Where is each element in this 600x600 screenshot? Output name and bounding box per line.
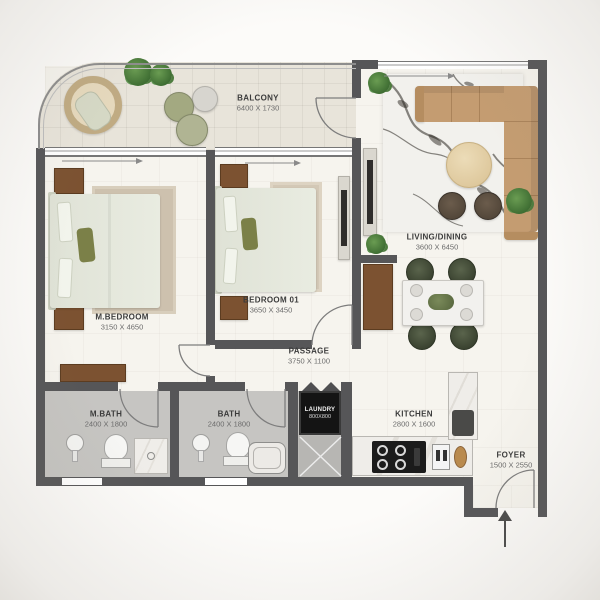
bed-pillow [57, 202, 74, 243]
room-label-mbedroom: M.BEDROOM 3150 X 4650 [95, 313, 148, 332]
bed-pillow [223, 248, 238, 285]
floor-plan: LAUNDRY 800X800 [0, 0, 600, 600]
bathtub-inner [253, 447, 281, 469]
room-dims: 3650 X 3450 [243, 306, 299, 315]
room-name: BALCONY [237, 94, 280, 103]
living-stool [474, 192, 502, 220]
wall-segment [341, 382, 352, 477]
sofa-top-section [424, 86, 508, 122]
dining-chair [450, 322, 478, 350]
dining-chair [408, 322, 436, 350]
room-label-bedroom01: BEDROOM 01 3650 X 3450 [243, 296, 299, 315]
room-name: M.BATH [85, 410, 128, 419]
room-label-foyer: FOYER 1500 X 2550 [490, 451, 533, 470]
room-name: M.BEDROOM [95, 313, 148, 322]
burner-icon [377, 445, 388, 456]
window-bath [205, 478, 247, 485]
room-name: BATH [208, 410, 251, 419]
sofa-armrest [504, 232, 538, 240]
bath-sink-pedestal [198, 450, 204, 462]
wall-segment [36, 148, 45, 486]
mbedroom-wardrobe [60, 364, 126, 382]
room-name: FOYER [490, 451, 533, 460]
place-setting [410, 284, 423, 297]
cooktop [372, 441, 426, 473]
entry-arrow-icon [496, 510, 516, 550]
wall-segment [170, 391, 179, 477]
wall-segment [158, 382, 245, 391]
room-dims: 3750 X 1100 [288, 357, 330, 366]
mbedroom-nightstand [54, 168, 84, 194]
sink-basin [436, 450, 440, 461]
room-name: BEDROOM 01 [243, 296, 299, 305]
accent-pillow [241, 217, 259, 250]
burner-icon [395, 459, 406, 470]
living-plant-icon [368, 72, 390, 94]
sofa-armrest [415, 86, 424, 122]
living-stool [438, 192, 466, 220]
tv-screen [367, 160, 373, 224]
accent-pillow [76, 227, 95, 262]
room-dims: 6400 X 1730 [237, 104, 280, 113]
entry-arrow-stem [504, 521, 506, 547]
washer-unit: LAUNDRY 800X800 [299, 391, 341, 435]
living-plant-icon [366, 234, 386, 254]
room-label-bath: BATH 2400 X 1800 [208, 410, 251, 429]
burner-icon [377, 459, 388, 470]
mbath-toilet-tank [101, 458, 131, 468]
place-setting [460, 308, 473, 321]
wall-segment [361, 255, 397, 263]
dining-console [363, 264, 393, 330]
coffee-table [446, 142, 492, 188]
room-label-living-dining: LIVING/DINING 3600 X 6450 [407, 233, 468, 252]
bath-toilet-bowl [226, 432, 250, 458]
laundry-name: LAUNDRY [305, 407, 336, 413]
place-setting [410, 308, 423, 321]
bed-pillow [57, 258, 73, 299]
floor-foyer [473, 486, 538, 508]
entry-arrow-head [498, 510, 512, 521]
place-setting [460, 284, 473, 297]
kitchen-basin [454, 446, 467, 468]
wall-segment [45, 382, 118, 391]
room-dims: 2400 X 1800 [208, 420, 251, 429]
room-name: PASSAGE [288, 347, 330, 356]
mbath-toilet-bowl [104, 434, 128, 460]
wall-segment [352, 138, 361, 349]
room-label-mbath: M.BATH 2400 X 1800 [85, 410, 128, 429]
room-dims: 2800 X 1600 [393, 420, 436, 429]
wall-segment [538, 60, 547, 517]
mbath-sink-pedestal [72, 450, 78, 462]
room-dims: 3150 X 4650 [95, 323, 148, 332]
room-dims: 1500 X 2550 [490, 461, 533, 470]
peninsula-sink [452, 410, 474, 436]
wall-segment [288, 391, 298, 477]
laundry-dims: 800X800 [309, 414, 331, 420]
kitchen-sink [432, 444, 450, 470]
shower-drain [147, 452, 155, 460]
blanket-fold [108, 194, 111, 308]
living-plant-icon [506, 188, 532, 214]
room-name: KITCHEN [393, 410, 436, 419]
sink-basin [443, 450, 447, 461]
bed-pillow [223, 196, 238, 233]
wall-segment [206, 150, 215, 345]
room-name: LIVING/DINING [407, 233, 468, 242]
window-mbath [62, 478, 102, 485]
tv-screen [341, 190, 347, 246]
wall-segment [285, 382, 298, 391]
room-label-kitchen: KITCHEN 2800 X 1600 [393, 410, 436, 429]
window-living-top [378, 61, 528, 69]
bedroom01-nightstand [220, 164, 248, 188]
burner-icon [395, 445, 406, 456]
room-label-balcony: BALCONY 6400 X 1730 [237, 94, 280, 113]
room-dims: 3600 X 6450 [407, 243, 468, 252]
table-centerpiece [428, 294, 454, 310]
laundry-closet [299, 436, 341, 477]
balcony-railing-inner [43, 68, 356, 149]
room-label-passage: PASSAGE 3750 X 1100 [288, 347, 330, 366]
room-dims: 2400 X 1800 [85, 420, 128, 429]
cooktop-controls [414, 448, 420, 466]
wall-segment [464, 508, 498, 517]
